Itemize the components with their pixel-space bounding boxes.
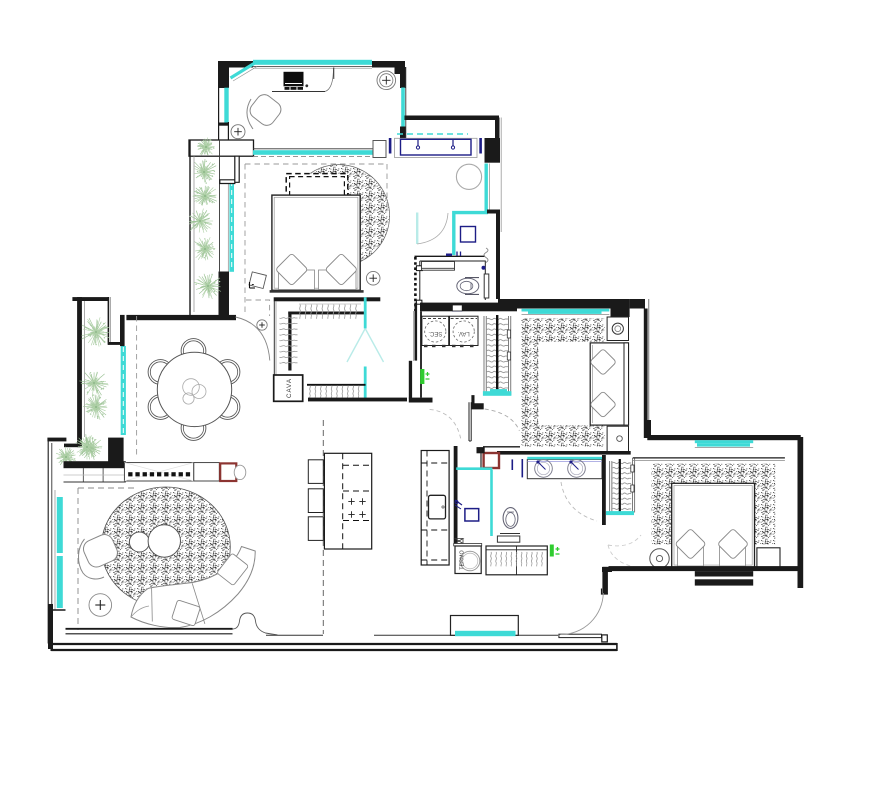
- svg-text:SEC.: SEC.: [428, 330, 442, 336]
- svg-text:CAVA: CAVA: [286, 378, 293, 398]
- svg-text:LAV.: LAV.: [457, 330, 469, 336]
- svg-text:TERMO: TERMO: [460, 550, 466, 569]
